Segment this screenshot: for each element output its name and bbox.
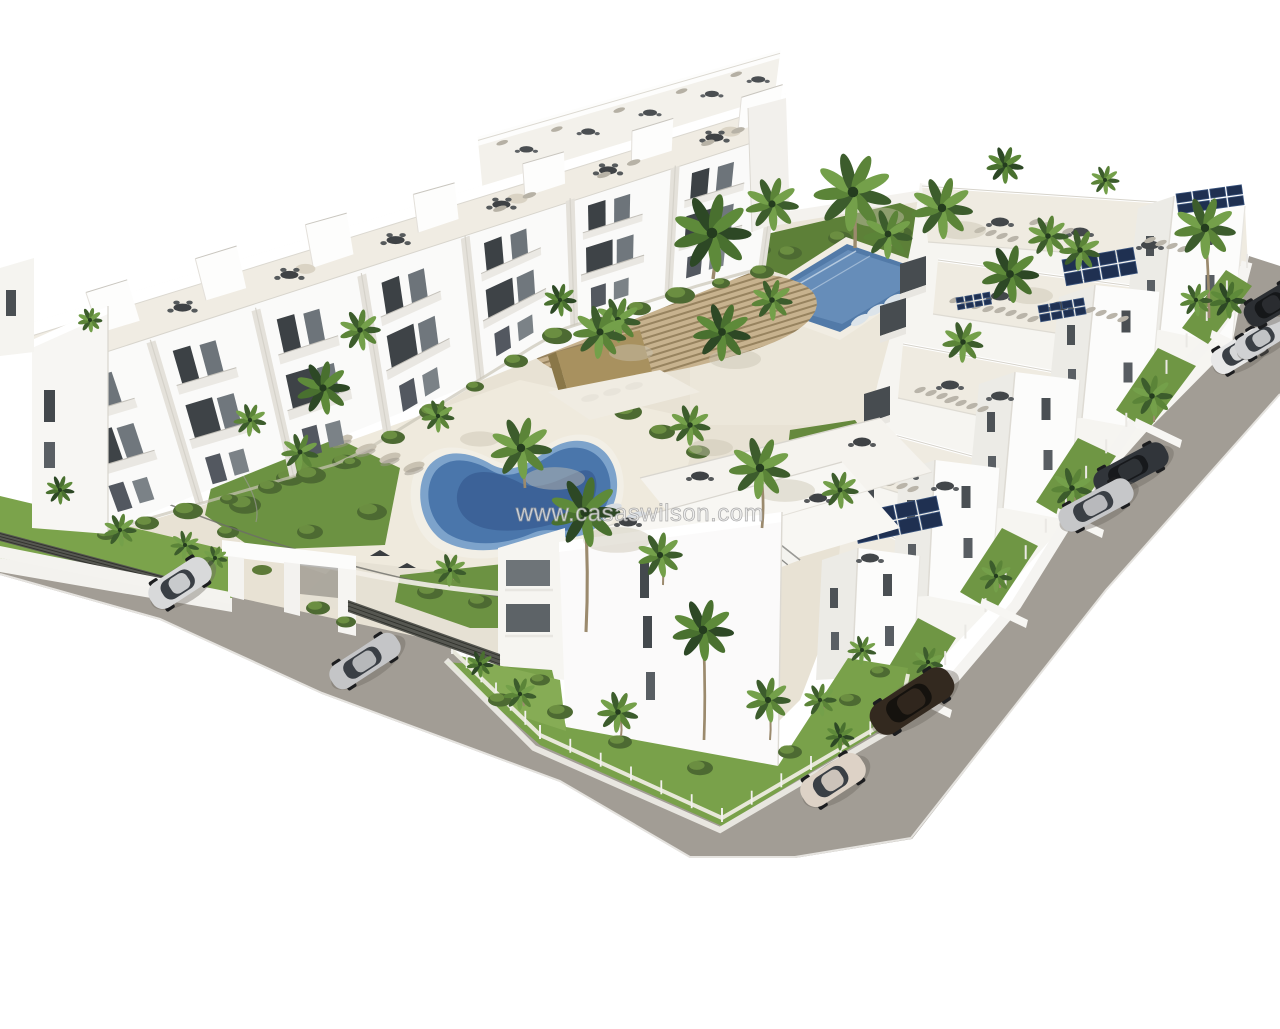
svg-text:www.casaswilson.com: www.casaswilson.com [515,500,764,527]
